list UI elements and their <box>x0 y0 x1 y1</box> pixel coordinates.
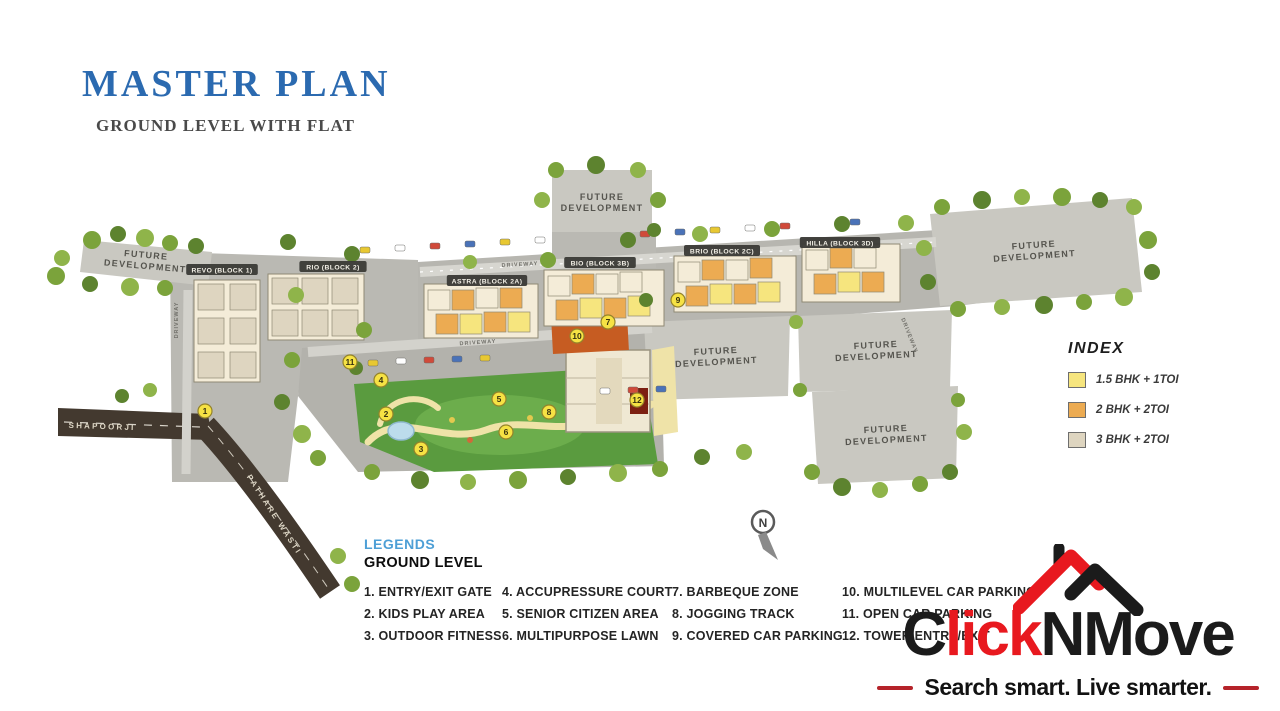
tree <box>916 240 932 256</box>
amenity-marker: 7 <box>601 315 615 329</box>
legend-item: 9. COVERED CAR PARKING <box>672 625 842 647</box>
tree <box>364 464 380 480</box>
tree <box>652 461 668 477</box>
tree <box>1144 264 1160 280</box>
tree <box>509 471 527 489</box>
tagline-left-dash <box>877 686 913 690</box>
legend-column: 7. BARBEQUE ZONE8. JOGGING TRACK9. COVER… <box>672 581 842 647</box>
amenity-marker: 10 <box>570 329 584 343</box>
tree <box>920 274 936 290</box>
flat-unit <box>548 276 570 296</box>
index-swatch <box>1068 372 1086 388</box>
flat-unit <box>460 314 482 334</box>
amenity-marker: 2 <box>379 407 393 421</box>
tagline-right-dash <box>1223 686 1259 690</box>
block-label: BIO (BLOCK 3B) <box>564 257 636 268</box>
flat-unit <box>596 274 618 294</box>
tree <box>157 280 173 296</box>
legend-item: 8. JOGGING TRACK <box>672 603 842 625</box>
tree <box>115 389 129 403</box>
tree <box>344 576 360 592</box>
tree <box>560 469 576 485</box>
tree <box>310 450 326 466</box>
parked-car <box>360 247 370 253</box>
index-title: INDEX <box>1068 340 1179 358</box>
flat-unit <box>508 312 530 332</box>
flat-unit <box>862 272 884 292</box>
tree <box>82 276 98 292</box>
parked-car <box>780 223 790 229</box>
tree <box>330 548 346 564</box>
legend-column: 1. ENTRY/EXIT GATE2. KIDS PLAY AREA3. OU… <box>364 581 502 647</box>
tree <box>650 192 666 208</box>
tree <box>288 287 304 303</box>
amenity-marker: 4 <box>374 373 388 387</box>
flat-unit <box>452 290 474 310</box>
kids-pool <box>388 422 414 440</box>
flat-unit <box>332 310 358 336</box>
flat-unit <box>500 288 522 308</box>
flat-unit <box>830 248 852 268</box>
logo-wordmark-part: NMove <box>1040 600 1233 669</box>
tree <box>736 444 752 460</box>
tree <box>284 352 300 368</box>
tree <box>1053 188 1071 206</box>
svg-text:REVO (BLOCK 1): REVO (BLOCK 1) <box>191 268 252 275</box>
flat-unit <box>476 288 498 308</box>
tree <box>639 293 653 307</box>
tree <box>143 383 157 397</box>
tree <box>534 192 550 208</box>
tree <box>460 474 476 490</box>
svg-text:8: 8 <box>547 407 552 417</box>
tree <box>587 156 605 174</box>
tree <box>110 226 126 242</box>
legend-item: 7. BARBEQUE ZONE <box>672 581 842 603</box>
tree <box>934 199 950 215</box>
svg-text:6: 6 <box>504 427 509 437</box>
flat-unit <box>580 298 602 318</box>
flat-unit <box>572 274 594 294</box>
tree <box>54 250 70 266</box>
svg-text:10: 10 <box>572 331 582 341</box>
flat-unit <box>758 282 780 302</box>
index-item: 1.5 BHK + 1TOI <box>1068 372 1179 388</box>
parked-car <box>500 239 510 245</box>
clicknmove-logo: ClickNMove Search smart. Live smarter. <box>858 544 1278 710</box>
flat-unit <box>620 272 642 292</box>
tree <box>956 424 972 440</box>
flat-unit <box>302 278 328 304</box>
flat-unit <box>838 272 860 292</box>
tree <box>620 232 636 248</box>
flat-unit <box>436 314 458 334</box>
legend-item: 6. MULTIPURPOSE LAWN <box>502 625 672 647</box>
index-item: 2 BHK + 2TOI <box>1068 402 1179 418</box>
parked-car <box>710 227 720 233</box>
amenity-marker: 1 <box>198 404 212 418</box>
flat-unit <box>678 262 700 282</box>
legend-item: 5. SENIOR CITIZEN AREA <box>502 603 672 625</box>
tree <box>463 255 477 269</box>
road-label: PATHARE WASTI <box>245 473 304 556</box>
logo-wordmark-part: C <box>902 600 945 669</box>
parked-car <box>628 387 638 393</box>
tree <box>1035 296 1053 314</box>
tree <box>912 476 928 492</box>
flat-unit <box>556 300 578 320</box>
compass-n-label: N <box>759 516 768 530</box>
tree <box>1092 192 1108 208</box>
amenity-marker: 6 <box>499 425 513 439</box>
flat-unit <box>198 352 224 378</box>
tree <box>994 299 1010 315</box>
logo-tagline: Search smart. Live smarter. <box>925 674 1212 701</box>
svg-text:HILLA (BLOCK 3D): HILLA (BLOCK 3D) <box>806 241 873 248</box>
flat-unit <box>198 318 224 344</box>
legend-item: 3. OUTDOOR FITNESS <box>364 625 502 647</box>
svg-text:9: 9 <box>676 295 681 305</box>
parked-car <box>675 229 685 235</box>
index-label: 2 BHK + 2TOI <box>1096 404 1169 416</box>
tree <box>630 162 646 178</box>
svg-text:4: 4 <box>379 375 384 385</box>
flat-unit <box>230 284 256 310</box>
tree <box>898 215 914 231</box>
tree <box>344 246 360 262</box>
tree <box>280 234 296 250</box>
amenity-marker: 9 <box>671 293 685 307</box>
tree <box>950 301 966 317</box>
amenity-marker: 11 <box>343 355 357 369</box>
svg-text:BIO (BLOCK 3B): BIO (BLOCK 3B) <box>571 261 630 268</box>
legend-column: 4. ACCUPRESSURE COURT5. SENIOR CITIZEN A… <box>502 581 672 647</box>
flat-unit <box>428 290 450 310</box>
amenity-marker: 5 <box>492 392 506 406</box>
parked-car <box>396 358 406 364</box>
index-label: 3 BHK + 2TOI <box>1096 434 1169 446</box>
flat-unit <box>332 278 358 304</box>
tree <box>872 482 888 498</box>
flat-unit <box>272 310 298 336</box>
tree <box>1014 189 1030 205</box>
block-label: RIO (BLOCK 2) <box>299 261 366 272</box>
parked-car <box>430 243 440 249</box>
tree <box>694 449 710 465</box>
svg-text:5: 5 <box>497 394 502 404</box>
flat-unit <box>230 318 256 344</box>
tree <box>411 471 429 489</box>
tree <box>834 216 850 232</box>
tree <box>540 252 556 268</box>
flat-unit <box>302 310 328 336</box>
index-panel: INDEX 1.5 BHK + 1TOI2 BHK + 2TOI3 BHK + … <box>1068 340 1179 448</box>
block-label: REVO (BLOCK 1) <box>186 264 258 275</box>
logo-wordmark-part: lick <box>945 600 1040 669</box>
logo-tagline-row: Search smart. Live smarter. <box>858 674 1278 701</box>
svg-text:ASTRA (BLOCK 2A): ASTRA (BLOCK 2A) <box>452 279 523 286</box>
svg-text:11: 11 <box>346 357 355 367</box>
svg-text:3: 3 <box>419 444 424 454</box>
flat-unit <box>702 260 724 280</box>
tree <box>1139 231 1157 249</box>
tree <box>136 229 154 247</box>
tree <box>162 235 178 251</box>
block-label: HILLA (BLOCK 3D) <box>800 237 880 248</box>
index-label: 1.5 BHK + 1TOI <box>1096 374 1179 386</box>
index-swatch <box>1068 432 1086 448</box>
parked-car <box>656 386 666 392</box>
block-label: BRIO (BLOCK 2C) <box>684 245 760 256</box>
tree <box>1076 294 1092 310</box>
parked-car <box>395 245 405 251</box>
parked-car <box>600 388 610 394</box>
flat-unit <box>734 284 756 304</box>
amenity-marker: 3 <box>414 442 428 456</box>
legend-item: 1. ENTRY/EXIT GATE <box>364 581 502 603</box>
tree <box>789 315 803 329</box>
parked-car <box>465 241 475 247</box>
tree <box>973 191 991 209</box>
tree <box>833 478 851 496</box>
svg-text:12: 12 <box>632 395 642 405</box>
svg-text:1: 1 <box>203 406 208 416</box>
parked-car <box>745 225 755 231</box>
flat-unit <box>806 250 828 270</box>
parked-car <box>368 360 378 366</box>
tree <box>793 383 807 397</box>
flat-unit <box>814 274 836 294</box>
tree <box>692 226 708 242</box>
svg-text:RIO (BLOCK 2): RIO (BLOCK 2) <box>306 265 360 272</box>
tree <box>188 238 204 254</box>
flat-unit <box>686 286 708 306</box>
tree <box>951 393 965 407</box>
tree <box>121 278 139 296</box>
parked-car <box>480 355 490 361</box>
parked-car <box>452 356 462 362</box>
block-label: ASTRA (BLOCK 2A) <box>447 275 527 286</box>
parked-car <box>535 237 545 243</box>
index-swatch <box>1068 402 1086 418</box>
logo-wordmark: ClickNMove <box>858 604 1278 666</box>
tree <box>804 464 820 480</box>
flat-unit <box>230 352 256 378</box>
flat-unit <box>198 284 224 310</box>
parked-car <box>850 219 860 225</box>
tree <box>293 425 311 443</box>
parked-car <box>424 357 434 363</box>
road-label: DRIVEWAY <box>174 302 180 339</box>
legend-item: 2. KIDS PLAY AREA <box>364 603 502 625</box>
tree <box>764 221 780 237</box>
tree <box>647 223 661 237</box>
tree <box>942 464 958 480</box>
amenity-marker: 12 <box>630 393 644 407</box>
flat-unit <box>854 248 876 268</box>
tree <box>1115 288 1133 306</box>
tree <box>609 464 627 482</box>
amenity-marker: 8 <box>542 405 556 419</box>
svg-text:7: 7 <box>606 317 611 327</box>
flat-unit <box>726 260 748 280</box>
tree <box>356 322 372 338</box>
tree <box>1126 199 1142 215</box>
tree <box>274 394 290 410</box>
tree <box>47 267 65 285</box>
index-items: 1.5 BHK + 1TOI2 BHK + 2TOI3 BHK + 2TOI <box>1068 372 1179 448</box>
tree <box>83 231 101 249</box>
index-item: 3 BHK + 2TOI <box>1068 432 1179 448</box>
flat-unit <box>710 284 732 304</box>
svg-text:BRIO (BLOCK 2C): BRIO (BLOCK 2C) <box>690 249 754 256</box>
flat-unit <box>484 312 506 332</box>
flat-unit <box>750 258 772 278</box>
svg-text:2: 2 <box>384 409 389 419</box>
tree <box>548 162 564 178</box>
legend-item: 4. ACCUPRESSURE COURT <box>502 581 672 603</box>
